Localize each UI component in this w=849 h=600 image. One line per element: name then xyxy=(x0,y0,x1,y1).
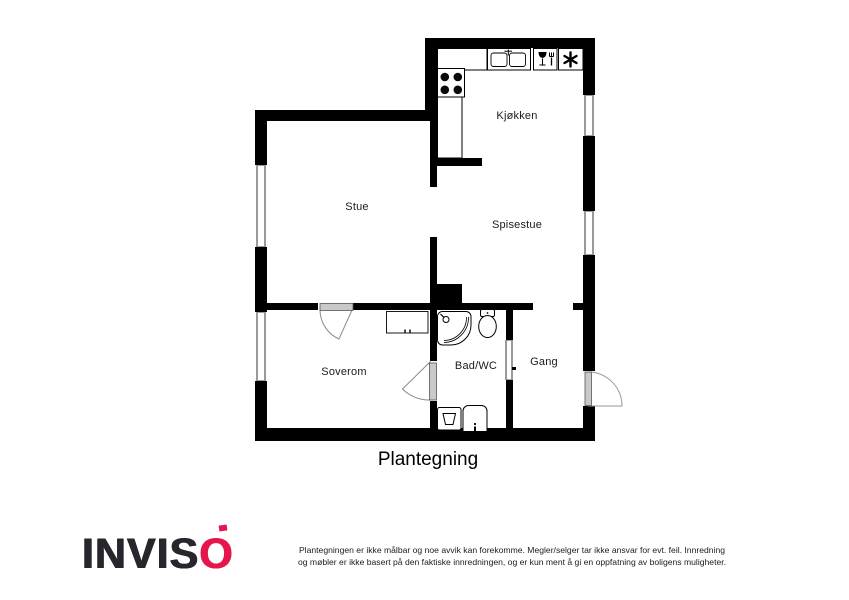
floor-plan-page: Kjøkken Stue Spisestue Soverom Bad/WC Ga… xyxy=(0,0,849,600)
disclaimer-text: Plantegningen er ikke målbar og noe avvi… xyxy=(296,545,728,568)
fixtures-layer xyxy=(0,0,849,600)
double-sink-icon xyxy=(488,49,531,71)
entrance-door xyxy=(585,372,622,406)
plan-title: Plantegning xyxy=(378,449,478,471)
logo-letter-o: O xyxy=(199,530,233,578)
soverom-door xyxy=(320,304,353,340)
kitchen-counter xyxy=(438,49,488,159)
logo-text-dark: INVIS xyxy=(82,530,199,578)
washing-machine-icon xyxy=(438,408,462,431)
room-label-bad: Bad/WC xyxy=(455,360,497,372)
stove-burners-icon xyxy=(438,69,465,98)
inviso-logo: INVISO xyxy=(82,531,234,577)
disclaimer-line-1: Plantegningen er ikke målbar og noe avvi… xyxy=(296,545,728,557)
disclaimer-line-2: og møbler er ikke basert på den faktiske… xyxy=(296,557,728,569)
shower-icon xyxy=(437,312,471,346)
asterisk-icon xyxy=(559,49,584,71)
toilet-icon xyxy=(479,310,497,338)
wineglass-fork-icon xyxy=(534,49,558,71)
cabinet-icon xyxy=(387,312,429,334)
bathroom-door xyxy=(403,362,437,400)
room-label-soverom: Soverom xyxy=(321,366,366,378)
room-label-spisestue: Spisestue xyxy=(492,219,542,231)
room-label-stue: Stue xyxy=(345,201,368,213)
logo-accent-dot xyxy=(219,524,228,531)
room-label-gang: Gang xyxy=(530,356,558,368)
washbasin-icon xyxy=(463,406,487,433)
room-label-kjokken: Kjøkken xyxy=(496,110,537,122)
